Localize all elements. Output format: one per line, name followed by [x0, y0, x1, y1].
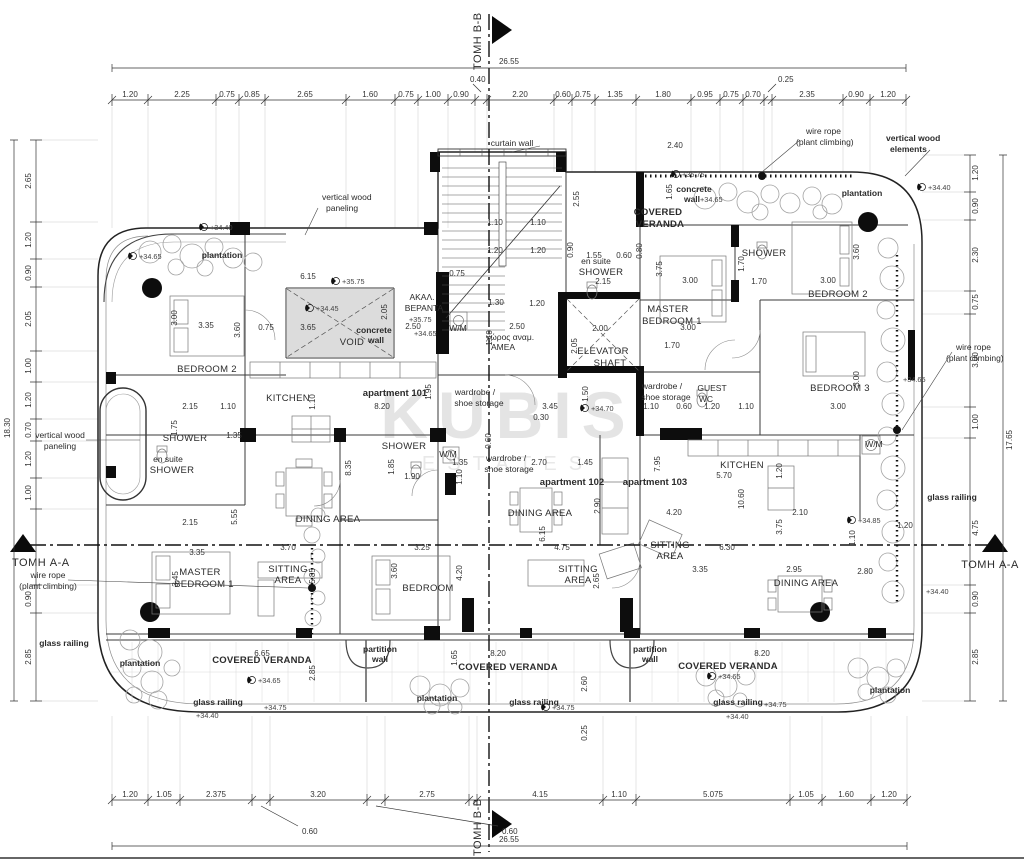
annotation-partition-1a: partition: [363, 644, 397, 654]
dim-right-7: 0.90: [971, 591, 980, 607]
overall-dim-left: 18.30: [3, 417, 12, 438]
dim-top-callout-040: 0.40: [470, 75, 486, 84]
pd-82: 5.85: [308, 568, 317, 584]
pd-11: 8.20: [374, 402, 390, 411]
room-label-elevator-b: SHAFT: [594, 358, 627, 369]
pd-61: 2.80: [857, 567, 873, 576]
pd-38: 1.10: [643, 402, 659, 411]
pd-66: 6.15: [538, 526, 547, 542]
room-label-sitting-102b: AREA: [564, 575, 591, 586]
dim-top-13: 1.80: [655, 90, 671, 99]
annotation-plantation-bc: plantation: [417, 693, 458, 703]
level-3440-br: +34.40: [926, 587, 949, 596]
pd-41: 3.45: [542, 402, 558, 411]
level-3465-right: +34.65: [903, 375, 926, 384]
pd-1: 0.75: [258, 323, 274, 332]
pd-35: 3.00: [830, 402, 846, 411]
room-label-wardrobe-102b: shoe storage: [484, 464, 533, 474]
pd-70: 1.35: [452, 458, 468, 467]
level-3440-bl: +34.40: [196, 711, 219, 720]
room-label-master-bl-b: BEDROOM 1: [174, 579, 234, 590]
dim-top-19: 1.20: [880, 90, 896, 99]
pd-3: 2.05: [380, 304, 389, 320]
dim-top-5: 1.60: [362, 90, 378, 99]
room-label-wardrobe-103b: shoe storage: [641, 392, 690, 402]
dim-top-11: 0.75: [575, 90, 591, 99]
pd-22: 1.55: [586, 251, 602, 260]
annotation-concrete-void-a: concrete: [356, 325, 392, 335]
dim-right-8: 2.85: [971, 649, 980, 665]
level-3440-tl: +34.40: [210, 223, 233, 232]
pd-58: 6.30: [719, 543, 735, 552]
pd-86: 8.20: [490, 649, 506, 658]
pd-29: 3.00: [680, 323, 696, 332]
dim-top-18: 0.90: [848, 90, 864, 99]
pd-8: 1.10: [220, 402, 236, 411]
pd-43: 2.55: [572, 191, 581, 207]
apartment-102-label: apartment 102: [540, 477, 604, 488]
dim-bottom-callout-060b: 0.60: [502, 827, 518, 836]
pd-27: 3.00: [682, 276, 698, 285]
pd-51: 7.95: [653, 456, 662, 472]
pd-63: 2.70: [531, 458, 547, 467]
room-label-dining-101: DINING AREA: [296, 514, 361, 525]
overall-dim-top: 26.55: [499, 57, 520, 66]
dim-bottom-6: 1.10: [611, 790, 627, 799]
dim-top-7: 1.00: [425, 90, 441, 99]
annotation-concrete-tr-b: wall: [683, 194, 700, 204]
annotation-plantation-tl: plantation: [202, 250, 243, 260]
level-3475-bl: +34.75: [264, 703, 287, 712]
annotation-concrete-tr-a: concrete: [676, 184, 712, 194]
level-3465-tl: +34.65: [139, 252, 162, 261]
dim-left-1: 1.20: [24, 232, 33, 248]
room-label-covered-veranda-2: COVERED VERANDA: [458, 662, 558, 673]
dim-top-15: 0.75: [723, 90, 739, 99]
annotation-partition-2b: wall: [641, 654, 658, 664]
dim-bottom-1: 1.05: [156, 790, 172, 799]
room-label-wardrobe-103a: wardrobe /: [641, 381, 683, 391]
level-3475-bc2: +34.75: [764, 700, 787, 709]
dim-right-1: 0.90: [971, 198, 980, 214]
dim-left-2: 0.90: [24, 265, 33, 281]
section-arrow-aa-right: [982, 534, 1008, 552]
annotation-plantation-bl: plantation: [120, 658, 161, 668]
pd-0: 6.15: [300, 272, 316, 281]
pd-79: 2.15: [182, 518, 198, 527]
dim-bottom-2: 2.375: [206, 790, 227, 799]
pd-48: 0.75: [449, 269, 465, 278]
annotation-vwe-a: vertical wood: [886, 133, 940, 143]
room-label-void: VOID: [340, 337, 364, 348]
pd-55: 4.20: [666, 508, 682, 517]
dim-bottom-0: 1.20: [122, 790, 138, 799]
annotation-partition-2a: partition: [633, 644, 667, 654]
pd-88: 8.20: [754, 649, 770, 658]
section-label-bb-bottom: ΤΟΜΗ B-B: [472, 798, 484, 856]
level-3445-void: +34.45: [316, 304, 339, 313]
dim-bottom-8: 1.05: [798, 790, 814, 799]
pd-20: 2.05: [570, 338, 579, 354]
pd-56: 2.10: [792, 508, 808, 517]
room-label-wardrobe-101b: shoe storage: [454, 398, 503, 408]
annotation-wire-right-a: wire rope: [955, 342, 991, 352]
pd-78: 5.55: [230, 509, 239, 525]
pd-46: 1.20: [487, 246, 503, 255]
annotation-glass-railing-left: glass railing: [39, 638, 89, 648]
annotation-wire-right-b: (plant climbing): [946, 353, 1004, 363]
dim-bottom-3: 3.20: [310, 790, 326, 799]
pd-89: 1.20: [897, 521, 913, 530]
dim-right-5: 1.00: [971, 414, 980, 430]
dim-right-6: 4.75: [971, 520, 980, 536]
level-3465-tr: +34.65: [700, 195, 723, 204]
dim-left-0: 2.65: [24, 173, 33, 189]
pd-12: 1.95: [424, 384, 433, 400]
room-label-sitting-103b: AREA: [656, 551, 683, 562]
pd-26: 0.80: [635, 243, 644, 259]
pd-62: 1.10: [848, 530, 857, 546]
pd-87: 1.65: [450, 650, 459, 666]
dim-top-4: 2.65: [297, 90, 313, 99]
dim-top-14: 0.95: [697, 90, 713, 99]
pd-10: 1.35: [226, 431, 242, 440]
pd-84: 6.65: [254, 649, 270, 658]
level-3475-bc: +34.75: [552, 703, 575, 712]
dim-bottom-10: 1.20: [881, 790, 897, 799]
room-label-bedroom-102: BEDROOM: [402, 583, 453, 594]
pd-47: 1.20: [530, 246, 546, 255]
pd-72: 1.85: [387, 459, 396, 475]
room-label-shower-102: SHOWER: [382, 441, 427, 452]
dim-left-6: 0.70: [24, 422, 33, 438]
pd-75: 3.60: [390, 563, 399, 579]
pd-32: 1.70: [737, 256, 746, 272]
annotation-glass-railing-bl: glass railing: [193, 697, 243, 707]
pd-7: 2.15: [182, 402, 198, 411]
dim-left-3: 2.05: [24, 311, 33, 327]
pd-30: 1.70: [664, 341, 680, 350]
annotation-partition-1b: wall: [371, 654, 388, 664]
pd-42: 0.30: [533, 413, 549, 422]
pd-80: 3.35: [189, 548, 205, 557]
dim-left-8: 1.00: [24, 485, 33, 501]
room-label-wardrobe-101a: wardrobe /: [454, 387, 496, 397]
pd-6: 3.60: [233, 322, 242, 338]
dim-top-2: 0.75: [219, 90, 235, 99]
dim-top-10: 0.60: [555, 90, 571, 99]
annotation-vwp-top-a: vertical wood: [322, 192, 372, 202]
overall-dim-right: 17.65: [1005, 429, 1014, 450]
level-3465-v1: +34.65: [258, 676, 281, 685]
annotation-glass-railing-bc2: glass railing: [713, 697, 763, 707]
dim-top-0: 1.20: [122, 90, 138, 99]
pd-67: 4.75: [554, 543, 570, 552]
pd-5: 3.00: [170, 310, 179, 326]
dim-row-top: 1.20 2.25 0.75 0.85 2.65 1.60 0.75 1.00 …: [122, 75, 896, 99]
pd-16: 1.10: [485, 330, 494, 346]
pd-81: 3.70: [280, 543, 296, 552]
overall-dim-bottom: 26.55: [499, 835, 520, 844]
room-label-akal-a: ΑΚΑΛ.: [409, 292, 434, 302]
pd-49: 2.40: [667, 141, 683, 150]
pd-73: 1.90: [404, 472, 420, 481]
section-label-aa-right: ΤΟΜΗ A-A: [961, 559, 1019, 571]
pd-15: 2.50: [509, 322, 525, 331]
annotation-curtain-wall: curtain wall: [491, 138, 534, 148]
dim-right-3: 0.75: [971, 294, 980, 310]
apartment-101-label: apartment 101: [363, 388, 428, 399]
room-label-kitchen-103: KITCHEN: [720, 460, 764, 471]
dim-top-8: 0.90: [453, 90, 469, 99]
room-label-akal-b: ΒΕΡΑΝΤΑ: [405, 303, 444, 313]
dim-top-12: 1.35: [607, 90, 623, 99]
pd-28: 3.75: [655, 261, 664, 277]
room-label-master-bl-a: MASTER: [179, 567, 220, 578]
dim-left-4: 1.00: [24, 358, 33, 374]
dim-top-3: 0.85: [244, 90, 260, 99]
level-3440-bc: +34.40: [726, 712, 749, 721]
pd-39: 0.60: [676, 402, 692, 411]
annotation-plantation-tr: plantation: [842, 188, 883, 198]
room-label-bedroom2-left: BEDROOM 2: [177, 364, 237, 375]
pd-64: 1.45: [577, 458, 593, 467]
floor-plan-page: KUBIS ESTATES: [0, 0, 1024, 864]
annotation-wire-top-a: wire rope: [805, 126, 841, 136]
pd-31: 1.70: [751, 277, 767, 286]
pd-2: 3.65: [300, 323, 316, 332]
pd-4: 3.35: [198, 321, 214, 330]
dim-bottom-4: 2.75: [419, 790, 435, 799]
pd-40: 1.10: [738, 402, 754, 411]
room-label-kitchen-101: KITCHEN: [266, 393, 310, 404]
room-label-covered-veranda-tr-b: VERANDA: [636, 219, 684, 230]
dim-left-5: 1.20: [24, 392, 33, 408]
section-label-bb-top: ΤΟΜΗ B-B: [472, 12, 484, 70]
room-label-shower-tr: SHOWER: [742, 248, 787, 259]
pd-65: 2.90: [593, 498, 602, 514]
pd-13: 1.10: [308, 394, 317, 410]
dim-col-right: 1.20 0.90 2.30 0.75 3.00 1.00 4.75 0.90 …: [971, 165, 980, 665]
dim-top-callout-025: 0.25: [778, 75, 794, 84]
pd-44: 1.10: [487, 218, 503, 227]
pd-14: 2.50: [405, 322, 421, 331]
pd-54: 1.20: [775, 463, 784, 479]
pd-85: 2.85: [308, 665, 317, 681]
pd-53: 10.60: [737, 488, 746, 509]
annotation-plantation-br: plantation: [870, 685, 911, 695]
room-label-wm-101: W/M: [449, 323, 466, 333]
pd-9: 1.75: [170, 420, 179, 436]
pd-50: 1.65: [665, 184, 674, 200]
pd-71: 1.10: [455, 469, 464, 485]
pd-52: 5.70: [716, 471, 732, 480]
room-label-elevator-a: ELEVATOR: [577, 346, 629, 357]
dim-top-1: 2.25: [174, 90, 190, 99]
dim-bottom-9: 1.60: [838, 790, 854, 799]
pd-45: 1.10: [530, 218, 546, 227]
pd-18: 1.30: [488, 298, 504, 307]
dim-top-17: 2.35: [799, 90, 815, 99]
dim-right-2: 2.30: [971, 247, 980, 263]
room-label-wm-103: W/M: [865, 439, 882, 449]
pd-76: 4.20: [455, 565, 464, 581]
annotation-vwp-left-b: paneling: [44, 441, 76, 451]
pd-77: 8.35: [344, 460, 353, 476]
pd-90: 0.25: [580, 725, 589, 741]
room-label-ensuite-101b: SHOWER: [150, 465, 195, 476]
annotation-glass-railing-right: glass railing: [927, 492, 977, 502]
dim-right-0: 1.20: [971, 165, 980, 181]
pd-59: 3.35: [692, 565, 708, 574]
room-label-covered-veranda-tr-a: COVERED: [634, 207, 682, 218]
room-label-guest-a: GUEST: [697, 383, 726, 393]
dim-left-10: 2.85: [24, 649, 33, 665]
dim-bottom-callout-060a: 0.60: [302, 827, 318, 836]
pd-60: 2.95: [786, 565, 802, 574]
apartment-103-label: apartment 103: [623, 477, 687, 488]
pd-17: 1.20: [529, 299, 545, 308]
annotation-wire-left-b: (plant climbing): [19, 581, 77, 591]
dim-left-9: 0.90: [24, 591, 33, 607]
pd-34: 3.60: [852, 244, 861, 260]
pd-74: 3.25: [414, 543, 430, 552]
room-label-bedroom2-right: BEDROOM 2: [808, 289, 868, 300]
annotation-wire-top-b: (plant climbing): [796, 137, 854, 147]
room-label-amea-b: ΑΜΕΑ: [491, 342, 515, 352]
dim-left-7: 1.20: [24, 451, 33, 467]
pd-19: 2.00: [592, 324, 608, 333]
dim-top-16: 0.70: [745, 90, 761, 99]
pd-57: 3.75: [775, 519, 784, 535]
section-arrow-bb-top: [492, 16, 512, 44]
pd-25: 0.90: [566, 242, 575, 258]
pd-33: 3.00: [820, 276, 836, 285]
room-label-sitting-103a: SITTING: [650, 540, 690, 551]
room-label-wardrobe-102a: wardrobe /: [485, 453, 527, 463]
pd-24: 2.15: [595, 277, 611, 286]
pd-91: 2.60: [580, 676, 589, 692]
pd-69: 0.60: [484, 433, 493, 449]
level-3575-void: +35.75: [342, 277, 365, 286]
room-label-sitting-101b: AREA: [274, 575, 301, 586]
annotation-vwe-b: elements: [890, 144, 927, 154]
section-label-aa-left: ΤΟΜΗ A-A: [12, 557, 70, 569]
pd-68: 2.65: [592, 573, 601, 589]
dim-top-9: 2.20: [512, 90, 528, 99]
level-3575-tr: +35.75: [682, 170, 705, 179]
pd-23: 0.60: [616, 251, 632, 260]
room-label-sitting-101a: SITTING: [268, 564, 308, 575]
dim-bottom-5: 4.15: [532, 790, 548, 799]
floor-plan-drawing: KUBIS ESTATES: [0, 0, 1024, 864]
annotation-vwp-left-a: vertical wood: [35, 430, 85, 440]
room-label-ensuite-101a: en suite: [153, 454, 183, 464]
level-3485-right: +34.85: [858, 516, 881, 525]
pd-83: 3.45: [171, 571, 180, 587]
pd-21: 1.50: [581, 386, 590, 402]
pd-36: 3.00: [852, 371, 861, 387]
level-3440-tr: +34.40: [928, 183, 951, 192]
room-label-covered-veranda-3: COVERED VERANDA: [678, 661, 778, 672]
room-label-dining-103: DINING AREA: [774, 578, 839, 589]
level-3465-v3: +34.65: [718, 672, 741, 681]
annotation-wire-left-a: wire rope: [30, 570, 66, 580]
dim-row-bottom: 1.20 1.05 2.375 3.20 2.75 4.15 1.10 5.07…: [122, 790, 897, 836]
room-label-master-tr-a: MASTER: [647, 304, 688, 315]
annotation-vwp-top-b: paneling: [326, 203, 358, 213]
dim-top-6: 0.75: [398, 90, 414, 99]
room-label-dining-102: DINING AREA: [508, 508, 573, 519]
pd-37: 1.20: [704, 402, 720, 411]
dim-bottom-7: 5.075: [703, 790, 724, 799]
annotation-concrete-void-b: wall: [367, 335, 384, 345]
level-3470-core: +34.70: [591, 404, 614, 413]
